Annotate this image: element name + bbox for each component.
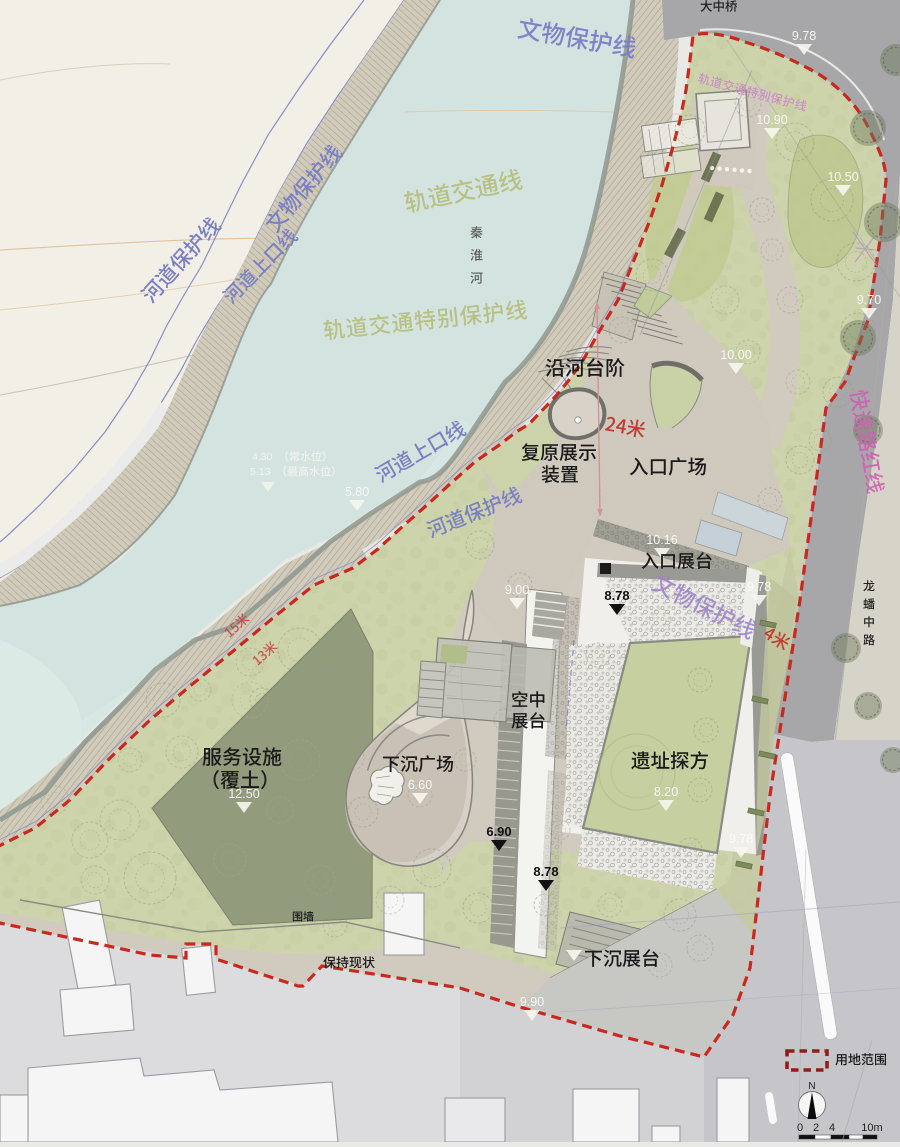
svg-text:N: N <box>808 1081 815 1092</box>
svg-text:4: 4 <box>829 1122 835 1134</box>
svg-text:8.78: 8.78 <box>604 588 629 603</box>
svg-text:12.50: 12.50 <box>228 787 259 801</box>
svg-text:10m: 10m <box>861 1122 882 1134</box>
svg-text:6.90: 6.90 <box>486 824 511 839</box>
svg-text:9.70: 9.70 <box>857 293 881 307</box>
svg-text:9.00: 9.00 <box>505 583 529 597</box>
svg-text:0: 0 <box>797 1122 803 1134</box>
svg-text:6.60: 6.60 <box>408 778 432 792</box>
svg-text:5.13: 5.13 <box>250 466 271 478</box>
svg-text:9.90: 9.90 <box>520 995 544 1009</box>
svg-text:9.78: 9.78 <box>792 29 816 43</box>
svg-text:8.20: 8.20 <box>654 785 678 799</box>
svg-text:9.78: 9.78 <box>729 832 753 846</box>
svg-text:4.30: 4.30 <box>252 451 273 463</box>
svg-text:10.50: 10.50 <box>827 170 858 184</box>
svg-text:2: 2 <box>813 1122 819 1134</box>
svg-text:10.00: 10.00 <box>720 348 751 362</box>
svg-text:10.16: 10.16 <box>646 533 677 547</box>
svg-text:5.80: 5.80 <box>345 485 369 499</box>
svg-text:10.90: 10.90 <box>756 113 787 127</box>
svg-text:8.78: 8.78 <box>533 864 558 879</box>
svg-text:9.78: 9.78 <box>747 580 771 594</box>
